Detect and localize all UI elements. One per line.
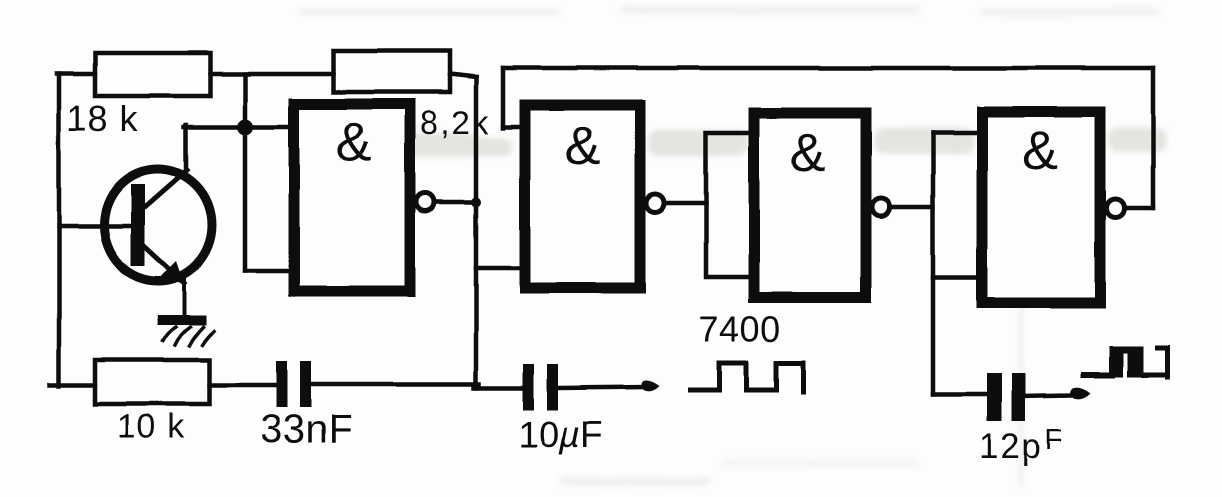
svg-text:&: & (790, 123, 826, 183)
svg-text:18 k: 18 k (67, 98, 139, 139)
svg-text:10µF: 10µF (518, 414, 603, 455)
svg-text:&: & (564, 116, 600, 176)
svg-text:8,2k: 8,2k (420, 104, 490, 141)
svg-text:7400: 7400 (699, 308, 781, 349)
svg-text:12pF: 12pF (979, 424, 1065, 466)
svg-text:&: & (1022, 121, 1058, 181)
svg-text:10 k: 10 k (117, 408, 185, 446)
svg-text:&: & (336, 112, 372, 172)
svg-text:33nF: 33nF (260, 407, 353, 451)
